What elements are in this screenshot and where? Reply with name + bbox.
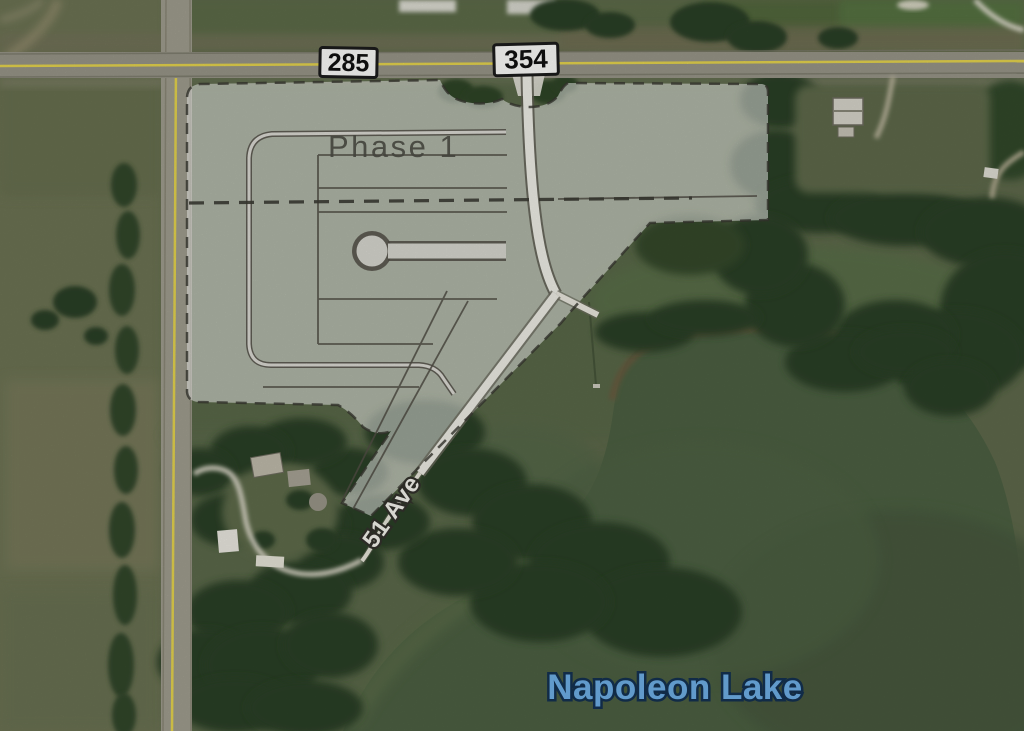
photo-grain-overlay (0, 0, 1024, 731)
map-canvas: Phase 1 285 354 51 Ave Napoleon Lake (0, 0, 1024, 731)
